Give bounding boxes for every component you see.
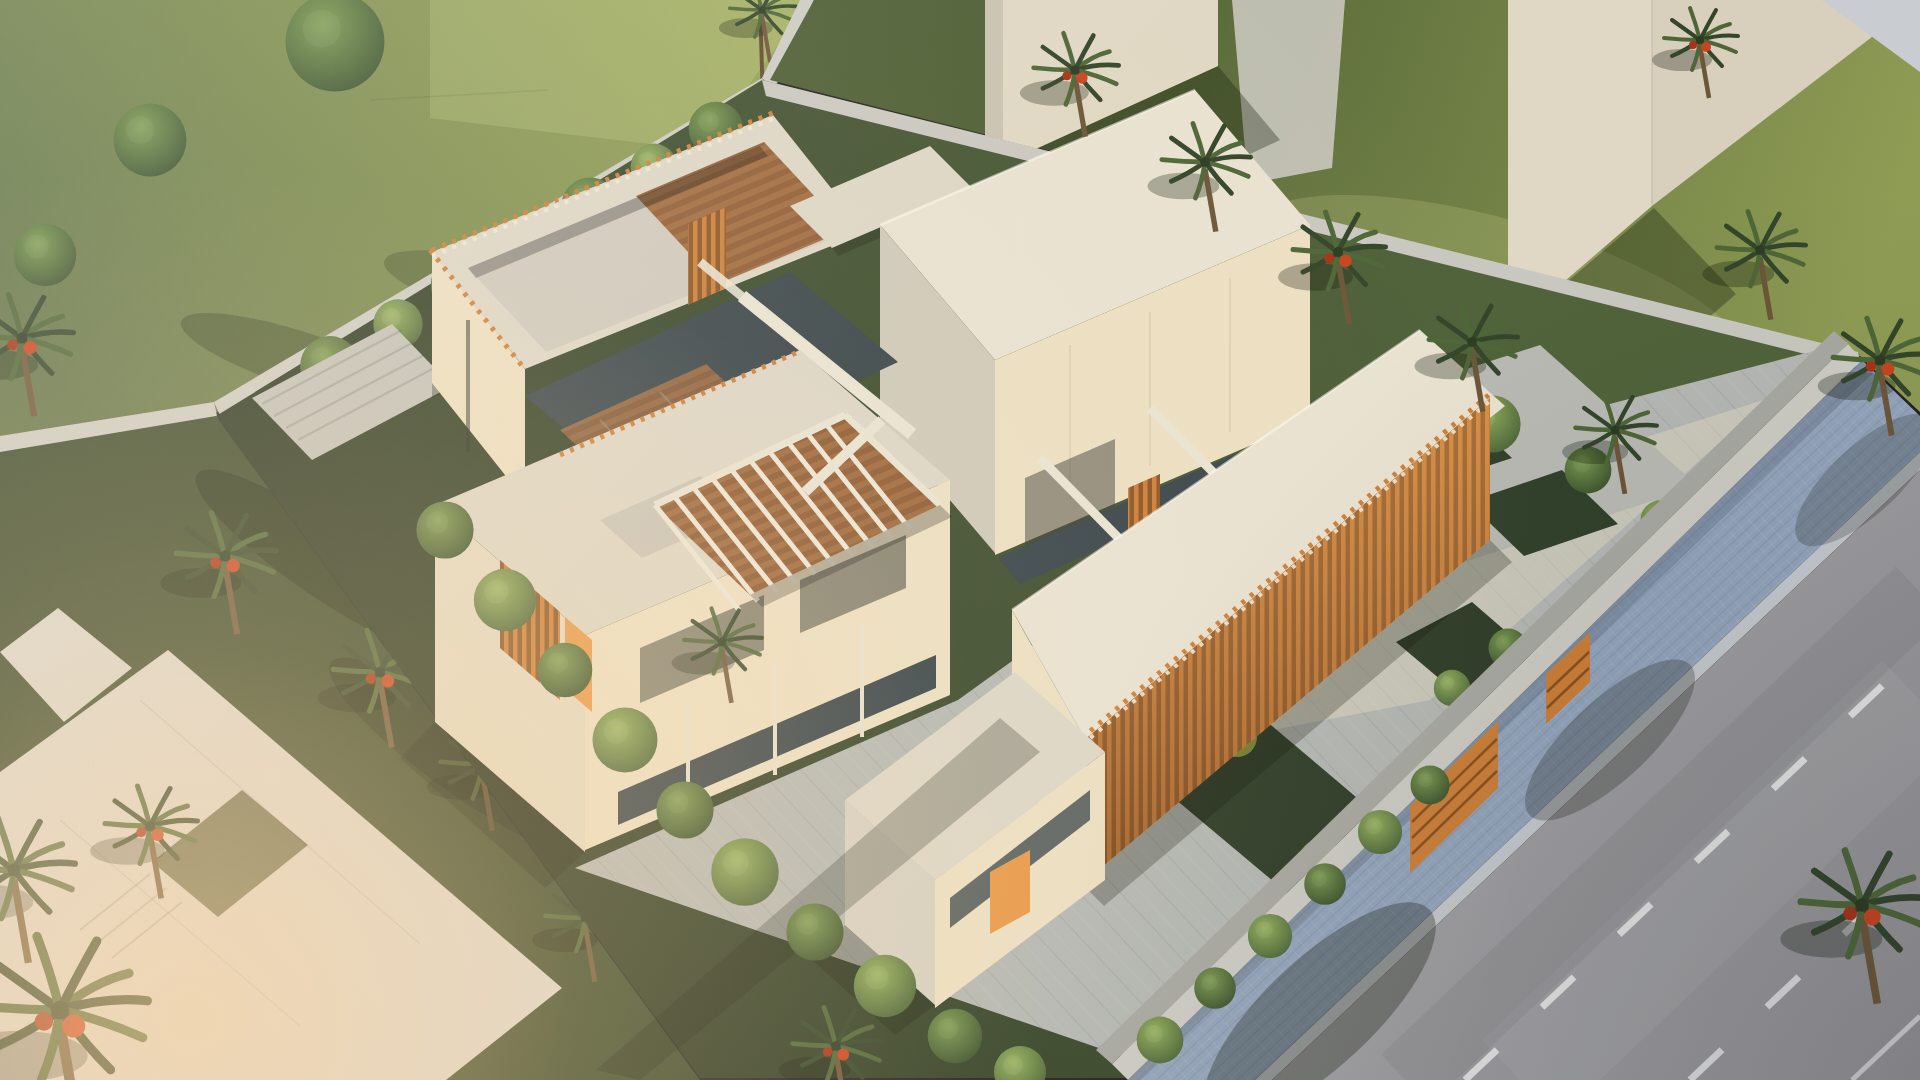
render-viewport — [0, 0, 1920, 1080]
vignette-bottom-right — [0, 0, 1920, 1080]
aerial-render-scene — [0, 0, 1920, 1080]
atmosphere-overlays — [0, 0, 1920, 1080]
